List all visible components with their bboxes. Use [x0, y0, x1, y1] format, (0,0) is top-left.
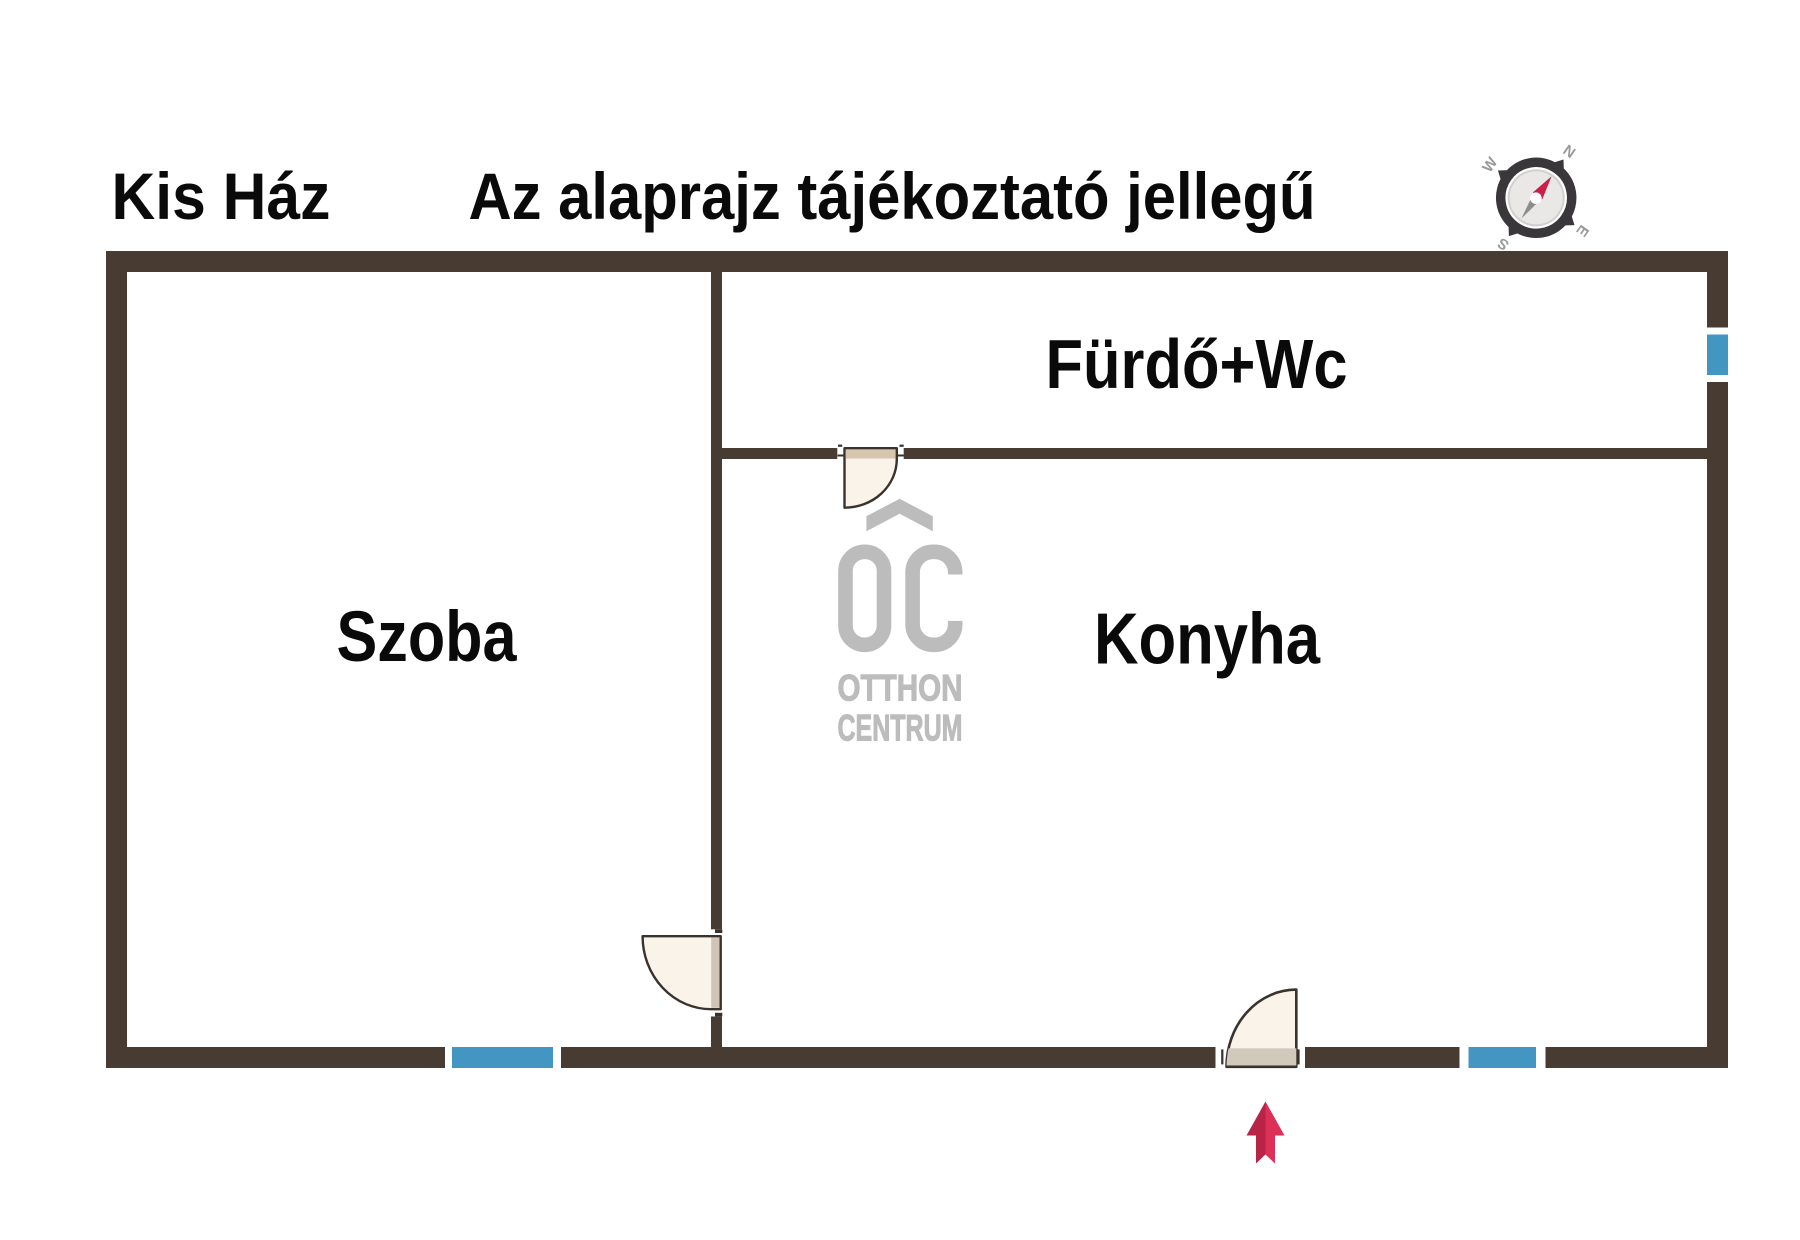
svg-text:Fürdő+Wc: Fürdő+Wc — [1046, 325, 1348, 403]
svg-text:Kis Ház: Kis Ház — [112, 159, 331, 233]
svg-text:CENTRUM: CENTRUM — [838, 708, 963, 749]
svg-text:OTTHON: OTTHON — [838, 668, 963, 709]
svg-text:Konyha: Konyha — [1094, 600, 1321, 680]
svg-text:Az alaprajz tájékoztató jelleg: Az alaprajz tájékoztató jellegű — [469, 159, 1316, 233]
svg-text:Szoba: Szoba — [337, 598, 517, 677]
